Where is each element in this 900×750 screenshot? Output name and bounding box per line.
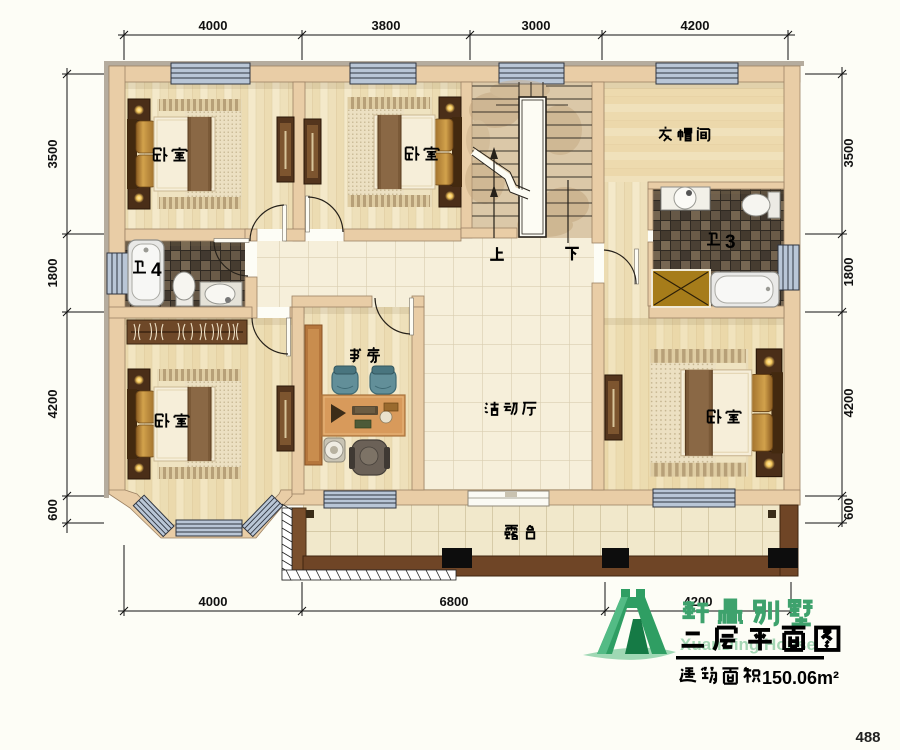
svg-text:4200: 4200 <box>681 18 710 33</box>
svg-text:3500: 3500 <box>841 139 856 168</box>
svg-text:4200: 4200 <box>841 389 856 418</box>
svg-text:488: 488 <box>855 729 880 746</box>
svg-text:3800: 3800 <box>372 18 401 33</box>
svg-text:600: 600 <box>45 499 60 521</box>
svg-text:6800: 6800 <box>440 594 469 609</box>
svg-text:3: 3 <box>725 232 736 253</box>
svg-text:1800: 1800 <box>45 259 60 288</box>
svg-text:600: 600 <box>841 498 856 520</box>
svg-text:4000: 4000 <box>199 18 228 33</box>
svg-text:3500: 3500 <box>45 140 60 169</box>
svg-text:3000: 3000 <box>522 18 551 33</box>
svg-text:150.06m²: 150.06m² <box>762 668 839 688</box>
svg-text:4: 4 <box>151 260 162 281</box>
svg-text:4200: 4200 <box>45 390 60 419</box>
svg-text:4000: 4000 <box>199 594 228 609</box>
svg-text:1800: 1800 <box>841 258 856 287</box>
